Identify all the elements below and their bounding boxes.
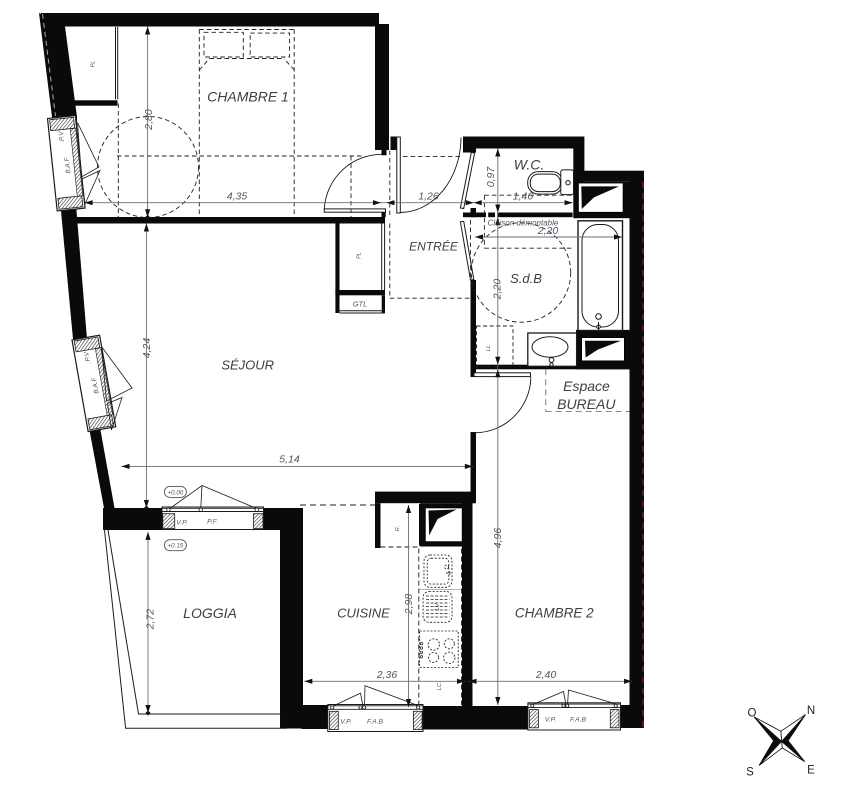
svg-text:Cloison démontable: Cloison démontable — [488, 219, 559, 228]
svg-text:2,98: 2,98 — [403, 594, 415, 616]
svg-text:CHAMBRE 1: CHAMBRE 1 — [207, 89, 289, 105]
svg-text:S.d.B: S.d.B — [510, 271, 542, 286]
svg-text:V.P.: V.P. — [340, 719, 352, 726]
svg-text:V.P.: V.P. — [545, 717, 557, 724]
svg-text:LV: LV — [435, 603, 441, 611]
svg-text:S: S — [746, 767, 754, 779]
svg-text:+0.00: +0.00 — [168, 489, 184, 496]
svg-text:GTL: GTL — [353, 300, 368, 309]
svg-text:4,35: 4,35 — [227, 191, 248, 203]
svg-text:.P.V: .P.V — [58, 130, 66, 143]
svg-text:ENTRÉE: ENTRÉE — [409, 239, 459, 254]
svg-text:W.C.: W.C. — [514, 157, 545, 173]
svg-text:CHAMBRE 2: CHAMBRE 2 — [515, 606, 594, 621]
svg-text:+0.15: +0.15 — [168, 543, 184, 550]
svg-text:P.F: P.F — [207, 519, 218, 526]
svg-text:V.P.: V.P. — [176, 520, 188, 527]
svg-text:F.A.B: F.A.B — [367, 719, 384, 726]
svg-text:PL: PL — [91, 61, 97, 68]
svg-text:BUREAU: BUREAU — [557, 396, 616, 412]
svg-text:2,72: 2,72 — [145, 609, 157, 631]
svg-text:R.: R. — [395, 526, 401, 532]
svg-text:LL: LL — [486, 345, 492, 351]
svg-text:LC.: LC. — [437, 682, 443, 691]
svg-text:SÉJOUR: SÉJOUR — [221, 358, 274, 373]
svg-text:4,96: 4,96 — [492, 528, 504, 549]
svg-text:2,80: 2,80 — [143, 109, 155, 131]
svg-text:E: E — [807, 765, 815, 777]
svg-text:2,40: 2,40 — [535, 669, 557, 681]
svg-text:LOGGIA: LOGGIA — [183, 605, 237, 621]
svg-text:1,26: 1,26 — [418, 191, 439, 203]
svg-text:2,36: 2,36 — [376, 669, 398, 681]
svg-text:4,24: 4,24 — [141, 338, 153, 359]
svg-text:F.A.B: F.A.B — [570, 717, 587, 724]
svg-text:0,97: 0,97 — [485, 166, 497, 188]
svg-text:Espace: Espace — [563, 378, 610, 394]
svg-text:5,14: 5,14 — [279, 454, 300, 466]
svg-text:N: N — [807, 705, 815, 717]
svg-text:1,46: 1,46 — [513, 191, 534, 203]
svg-text:O: O — [748, 708, 757, 720]
svg-text:CUISINE: CUISINE — [337, 606, 390, 621]
svg-text:2,20: 2,20 — [492, 279, 504, 301]
svg-text:PL: PL — [357, 252, 363, 259]
